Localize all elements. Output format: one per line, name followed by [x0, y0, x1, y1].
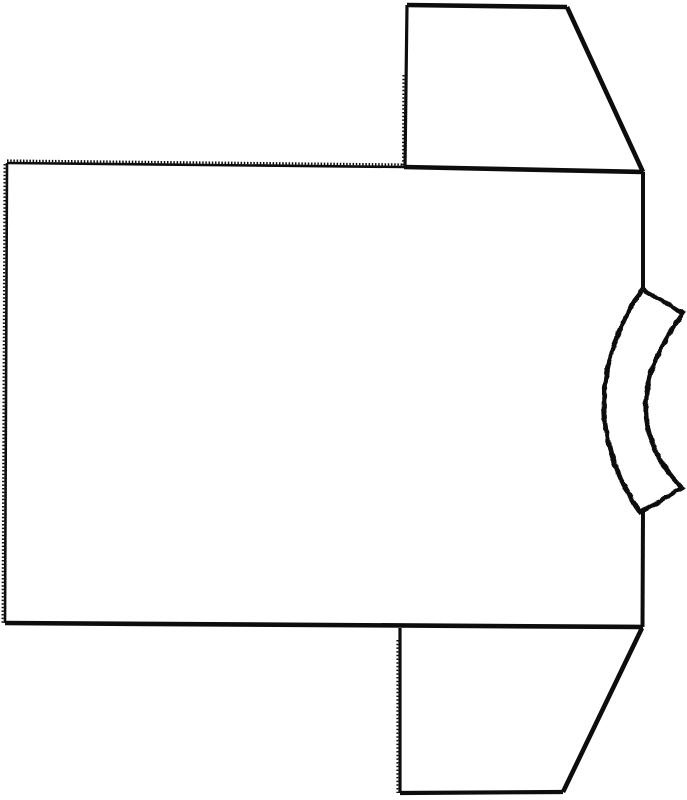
top-sleeve-top-edge — [407, 5, 567, 7]
neckband-outline — [604, 289, 683, 512]
top-sleeve-slant-edge — [567, 7, 643, 172]
body-top-edge-solid — [404, 167, 643, 172]
body-bottom-edge — [5, 623, 643, 627]
pattern-canvas — [0, 0, 687, 800]
bottom-sleeve-bottom-edge — [400, 792, 563, 793]
body-left-edge-base — [5, 163, 7, 623]
body-right-edge-lower — [643, 510, 644, 627]
pattern-paths — [3, 5, 683, 793]
bottom-sleeve-slant-edge — [563, 628, 642, 792]
top-sleeve-left-edge — [405, 5, 407, 167]
pattern-svg — [0, 0, 687, 800]
